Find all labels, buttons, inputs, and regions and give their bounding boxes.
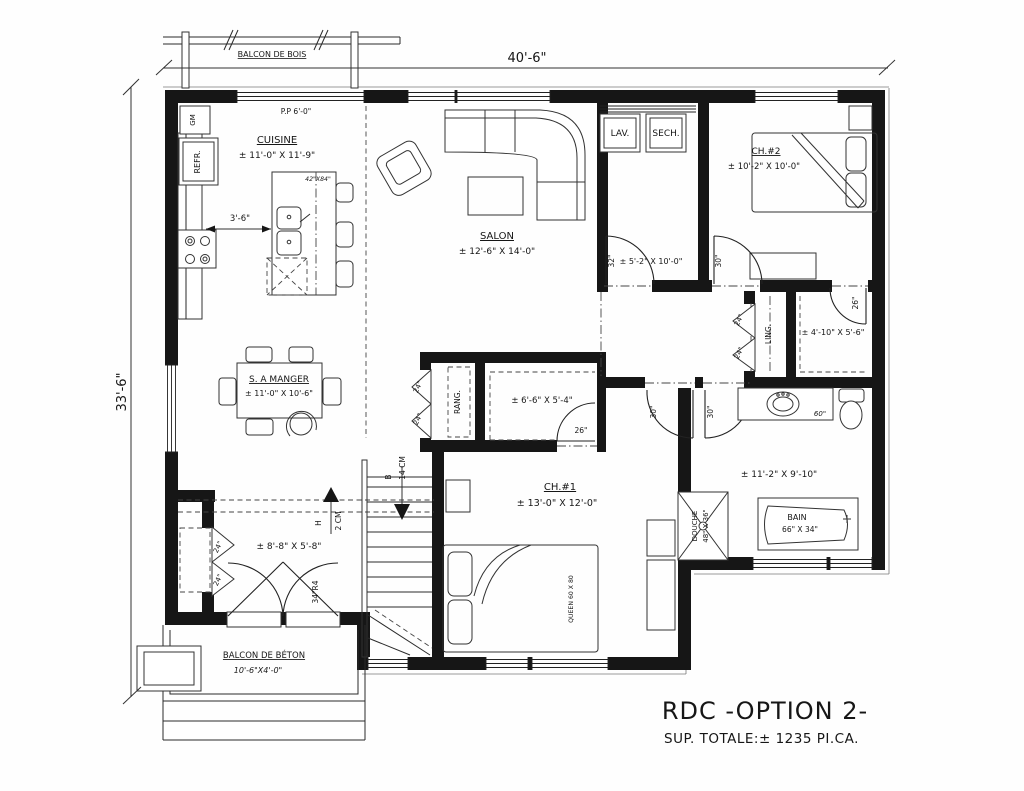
dining-chair [219,378,236,405]
coffee-table [468,177,523,215]
dining-chair [289,347,313,362]
ch1-bed: QUEEN 60 X 80 [443,545,598,652]
dryer-label: SECH. [652,129,679,139]
stairs-down-arrow: B 14 CM [384,456,410,520]
refrigerator-label: REFR. [193,150,202,173]
ch1-window-1 [486,657,528,670]
front-door-label: 34"R4 [311,580,320,603]
walkin1-door: 26" [557,403,595,441]
plan-title: RDC -OPTION 2- [662,697,868,725]
height-dimension: 33'-6" [115,79,141,704]
walkin1-door-label: 26" [575,426,588,435]
shower: DOUCHE 48" X 36" [678,492,728,560]
ling-bifold-doors: 24" 24" [733,304,755,371]
bath-window-1 [753,557,827,570]
pantry-cabinet: GM [180,106,210,134]
tub-size-label: 66" X 34" [782,525,818,534]
ch1-window-2 [532,657,608,670]
dining-chair [323,378,341,405]
entry-size: ± 8'-8" X 5'-8" [257,542,322,552]
width-dimension-label: 40'-6" [507,51,546,66]
salon-window-2 [457,90,550,103]
salon-name: SALON [480,231,514,242]
bath-size: ± 11'-2" X 9'-10" [741,470,817,480]
island-size-label: 42"X84" [305,176,331,183]
kitchen-clearance-label: 3'-6" [230,214,250,224]
ch2-bed [752,133,877,212]
concrete-balcony: BALCON DE BÉTON 10'-6"X4'-0" [137,625,365,740]
walkin2-size: ± 4'-10" X 5'-6" [802,328,865,337]
ling-label: LING. [764,324,773,344]
dining-name: S. A MANGER [249,375,309,385]
height-dimension-label: 33'-6" [115,372,130,411]
laundry-size: ± 5'-2" X 10'-0" [620,257,683,266]
wood-balcony: BALCON DE BOIS [163,30,400,88]
rang-bifold-doors: 24" 24" [412,370,431,438]
vanity-size-label: 60" [814,410,826,418]
stairs-window [368,657,408,670]
ch2-window [755,90,838,103]
bath-window-2 [830,557,872,570]
pantry-label: GM [189,114,197,125]
walkin-closet-1: ± 6'-6" X 5'-4" 26" [511,396,595,441]
linen-closet: LING. 24" 24" [733,304,773,371]
wood-balcony-label: BALCON DE BOIS [238,50,307,59]
stairs-up-arrow: H 2 CM [314,487,343,534]
bedroom-2: CH.#2 ± 10'-2" X 10'-0" 30" [714,106,877,284]
ch1-door-label: 30" [649,406,658,419]
toilet [839,389,864,429]
tub-name-label: BAIN [787,513,806,522]
ch2-dresser [750,253,816,279]
ch2-size: ± 10'-2" X 10'-0" [728,162,800,172]
floor-plan-page: B 14 CM H 2 CM GM REFR. [0,0,1024,791]
entry-closet-bifold-doors: 24" 24" [212,527,234,596]
ch1-size: ± 13'-0" X 12'-0" [517,498,598,509]
kitchen-name: CUISINE [257,135,297,146]
plan-subtitle: SUP. TOTALE:± 1235 PI.CA. [664,731,859,747]
stairs-down-count: 14 CM [398,456,407,480]
walkin1-size: ± 6'-6" X 5'-4" [511,396,572,406]
ch2-nightstand [849,106,872,130]
ch2-door: 30" [714,236,762,284]
dining-chair [246,419,273,435]
ch2-name: CH.#2 [751,147,780,157]
dining-window [165,365,178,452]
ch2-door-label: 30" [714,255,723,268]
sectional-sofa [445,110,585,220]
storage-rang: RANG. 24" 24" [412,370,462,438]
dryer: SECH. [646,114,686,152]
living-room: SALON ± 12'-6" X 14'-0" [374,110,585,257]
island-stools [336,183,353,287]
dining-size: ± 11'-0" X 10'-6" [245,389,313,398]
title-block: RDC -OPTION 2- SUP. TOTALE:± 1235 PI.CA. [662,697,868,747]
concrete-balcony-label: BALCON DE BÉTON [223,649,305,661]
rang-label: RANG. [453,390,462,414]
kitchen-island: 42"X84" [272,172,336,295]
kitchen-size: ± 11'-0" X 11'-9" [239,151,315,161]
basement-window-well [137,646,201,691]
ch1-bed-label: QUEEN 60 X 80 [568,575,575,623]
stairs-down-letter: B [384,474,393,479]
kitchen-window-label: P.P 6'-0" [281,107,311,116]
floor-plan-drawing: B 14 CM H 2 CM GM REFR. [0,0,1024,791]
ch1-dresser [647,560,675,630]
concrete-balcony-size: 10'-6"X4'-0" [234,666,282,675]
stairs-up-count: 2 CM [334,512,343,531]
washer: LAV. [600,114,640,152]
walkin2-door-label: 26" [851,297,860,310]
refrigerator: REFR. [179,138,218,185]
bath-door-label: 30" [706,406,715,419]
ch1-dresser [647,520,675,556]
shower-size-label: 48" X 36" [702,509,710,543]
dining-high-chair [286,411,316,436]
stove [178,230,216,268]
armchair [374,138,434,198]
entry-vestibule: ± 8'-8" X 5'-8" 24" 24" 34"R4 [212,527,340,627]
walkin2-door: 26" [830,288,866,324]
salon-size: ± 12'-6" X 14'-0" [459,247,535,257]
bedroom-1: QUEEN 60 X 80 CH.#1 ± 13'-0" X 12'-0" [443,480,675,652]
washer-label: LAV. [611,129,630,139]
ch1-name: CH.#1 [544,482,576,493]
stairs-up-letter: H [314,520,323,526]
kitchen: GM REFR. 42"X84" [178,106,353,319]
laundry-room: LAV. SECH. ± 5'-2" X 10'-0" 32" [600,106,696,284]
kitchen-window [237,90,364,103]
dining-chair [246,347,272,362]
dining-room: S. A MANGER ± 11'-0" X 10'-6" [219,347,341,436]
hallway-doors: 30" 30" [647,390,751,438]
walkin-closet-2: ± 4'-10" X 5'-6" 26" [802,288,866,337]
shower-name-label: DOUCHE [691,511,699,542]
laundry-door-label: 32" [607,255,616,268]
vanity: 60" [738,388,833,420]
bathtub: BAIN 66" X 34" [758,498,858,550]
ch1-nightstand [446,480,470,512]
salon-window-1 [408,90,455,103]
